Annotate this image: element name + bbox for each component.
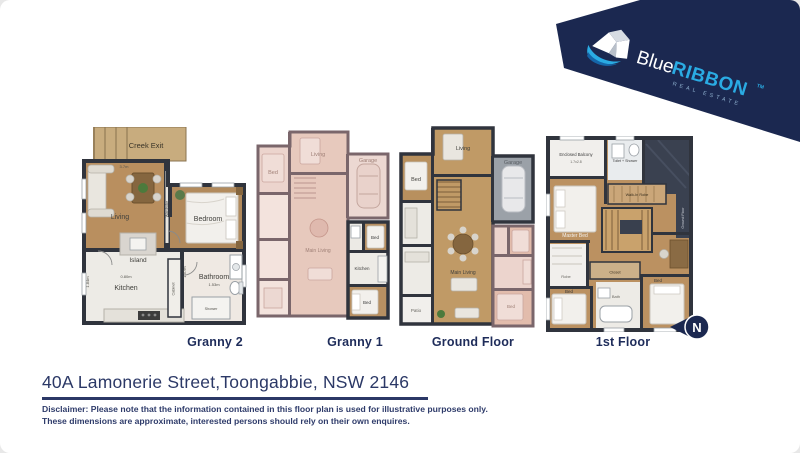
north-compass-icon: N <box>666 308 716 348</box>
granny-2-floorplan: Creek Exit <box>80 127 248 332</box>
creek-exit-deck: Creek Exit <box>94 127 186 161</box>
dim-top: 3.7m <box>120 164 130 169</box>
faded-granny-unit <box>493 226 533 326</box>
label-walk-in-robe: Walk-In Robe <box>626 193 649 197</box>
label-closet: Closet <box>609 270 621 275</box>
dim-bath: 1.53m <box>208 282 220 287</box>
compass-letter: N <box>692 320 701 335</box>
floorplan-flyer: Blue RIBBON TM REAL ESTATE Creek Exit <box>0 0 800 453</box>
label-bed-faded: Bed <box>268 170 278 176</box>
room-label-living: Living <box>111 214 129 221</box>
label-roof: Ground Floor <box>681 207 685 229</box>
label-garage-faded: Garage <box>359 158 377 164</box>
room-label-island: Island <box>129 257 147 264</box>
ground-floor-floorplan: Living Bed Garage Main Living Patio Bed <box>399 126 536 336</box>
dim-left: 1.84m <box>85 276 90 288</box>
label-bed1: Bed <box>565 289 574 294</box>
label-living: Living <box>456 146 470 152</box>
granny-1-drawing: Living Bed Garage Main Living Bed Kitche… <box>256 130 390 322</box>
room-label-kitchen: Kitchen <box>114 285 137 292</box>
label-unit-bed2: Bed <box>363 300 372 305</box>
dim-balcony: 1.7x2.8 <box>570 160 582 164</box>
robe-floor <box>548 244 586 288</box>
room-label-bathroom: Bathroom <box>199 274 230 281</box>
label-wardrobe: Wardrobe <box>165 201 169 218</box>
label-master-bed: Master Bed <box>562 233 588 239</box>
plan-label-granny-1: Granny 1 <box>290 335 420 349</box>
granny-1-floorplan: Living Bed Garage Main Living Bed Kitche… <box>256 130 390 327</box>
label-bed: Bed <box>411 177 421 183</box>
address-underline <box>42 397 428 400</box>
granny-2-drawing: Creek Exit <box>80 127 248 327</box>
kitchen-island <box>120 233 156 255</box>
label-robe2: Robe <box>561 274 571 279</box>
first-floor-floorplan: Ground Floor <box>546 136 693 337</box>
disclaimer-line-1: Disclaimer: Please note that the informa… <box>42 404 488 414</box>
balcony-floor <box>550 140 604 176</box>
label-main-living: Main Living <box>450 270 476 276</box>
stairs <box>602 208 652 252</box>
label-toilet: Toilet + Shower <box>613 159 638 163</box>
property-address: 40A Lamonerie Street,Toongabbie, NSW 214… <box>42 372 409 393</box>
label-bath: Bath <box>612 294 620 299</box>
label-patio: Patio <box>411 308 422 313</box>
label-bed2: Bed <box>654 278 663 283</box>
label-unit-bed1: Bed <box>371 235 380 240</box>
label-unit-bed-faded: Bed <box>507 304 516 309</box>
disclaimer-text: Disclaimer: Please note that the informa… <box>42 404 488 427</box>
disclaimer-line-2: These dimensions are approximate, intere… <box>42 416 410 426</box>
room-label-bedroom: Bedroom <box>194 216 223 223</box>
first-floor-drawing: Ground Floor <box>546 136 693 332</box>
ground-floor-drawing: Living Bed Garage Main Living Patio Bed <box>399 126 536 331</box>
label-shower: Shower <box>205 307 219 311</box>
dim-mid: 1.57m <box>182 266 187 278</box>
label-cabinet: Cabinet <box>172 282 176 296</box>
plan-label-granny-2: Granny 2 <box>150 335 280 349</box>
label-unit-kitchen: Kitchen <box>354 266 370 271</box>
room-label-creek-exit: Creek Exit <box>129 141 165 150</box>
dim-kitchen: 0.80m <box>120 274 132 279</box>
label-balcony: Enclosed Balcony <box>559 152 593 157</box>
label-garage: Garage <box>504 160 522 166</box>
label-main-living-faded: Main Living <box>305 248 331 254</box>
label-living-faded: Living <box>311 152 325 158</box>
mid-wall <box>84 248 244 252</box>
plan-label-ground-floor: Ground Floor <box>408 335 538 349</box>
